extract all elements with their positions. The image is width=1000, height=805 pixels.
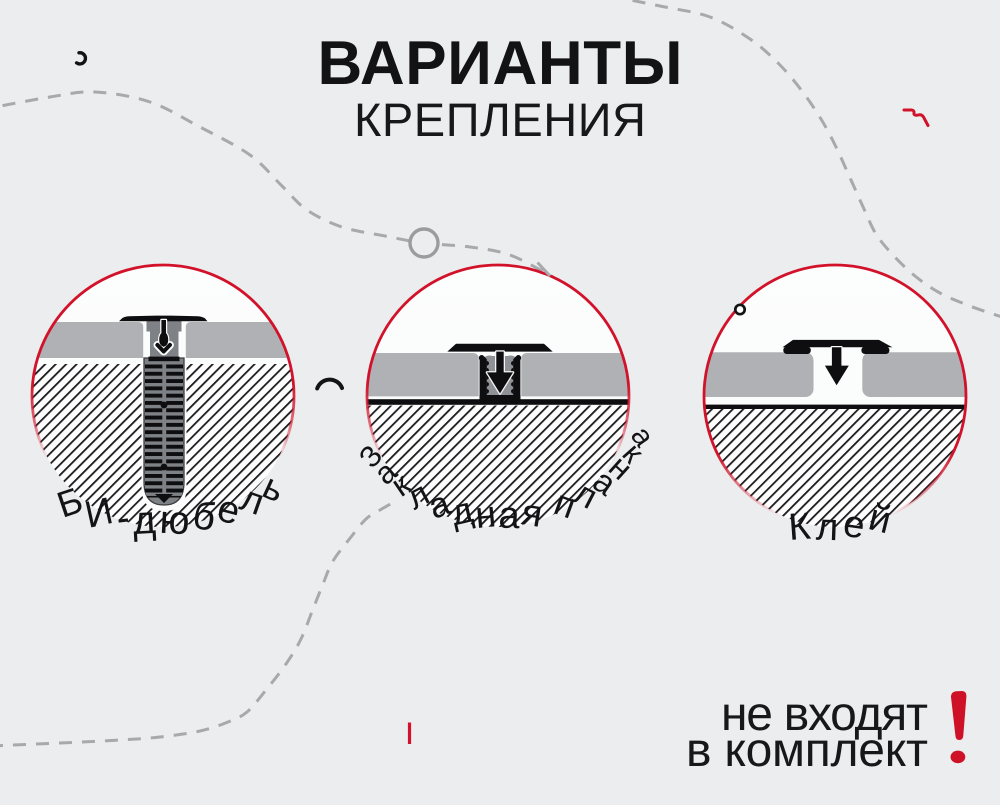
svg-text:КРЕПЛЕНИЯ: КРЕПЛЕНИЯ — [354, 93, 646, 146]
svg-text:ВАРИАНТЫ: ВАРИАНТЫ — [318, 29, 683, 98]
svg-text:в комплект: в комплект — [686, 724, 928, 777]
